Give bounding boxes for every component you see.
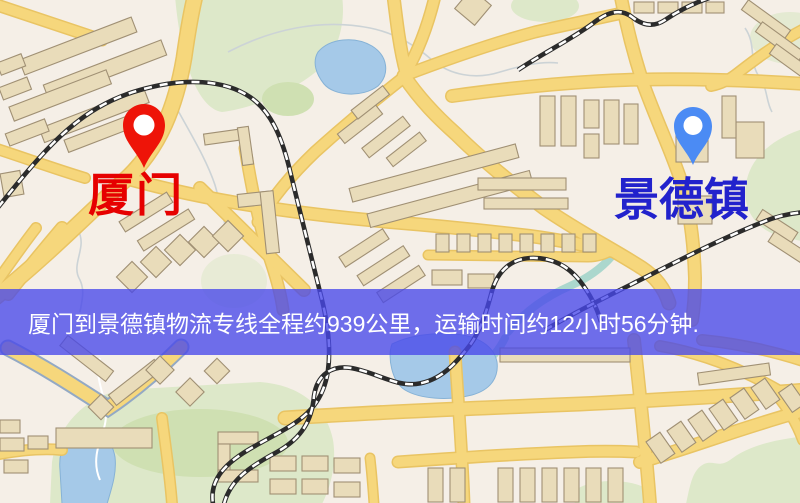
info-banner: 厦门到景德镇物流专线全程约939公里，运输时间约12小时56分钟. xyxy=(0,289,800,355)
destination-city-label: 景德镇 xyxy=(614,177,749,222)
banner-text: 厦门到景德镇物流专线全程约939公里，运输时间约12小时56分钟. xyxy=(28,305,699,339)
map-canvas xyxy=(0,0,800,503)
pond xyxy=(315,40,386,94)
map-image: 厦门 景德镇 厦门到景德镇物流专线全程约939公里，运输时间约12小时56分钟. xyxy=(0,0,800,503)
origin-pin-icon xyxy=(120,101,168,171)
origin-city-label: 厦门 xyxy=(88,172,184,218)
destination-pin-icon xyxy=(671,104,715,168)
